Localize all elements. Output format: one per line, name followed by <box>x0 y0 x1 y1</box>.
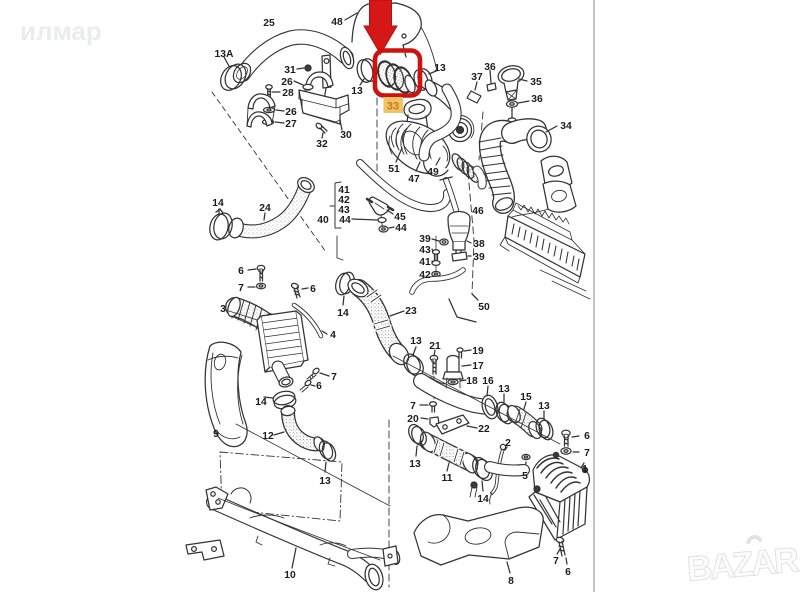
svg-text:13: 13 <box>538 401 550 412</box>
svg-text:47: 47 <box>408 174 420 185</box>
svg-text:13: 13 <box>410 336 422 347</box>
svg-text:4: 4 <box>330 330 336 341</box>
svg-text:27: 27 <box>285 119 297 130</box>
svg-text:44: 44 <box>395 223 407 234</box>
svg-text:26: 26 <box>285 107 297 118</box>
svg-text:37: 37 <box>471 72 483 83</box>
svg-text:7: 7 <box>331 372 337 383</box>
svg-text:50: 50 <box>478 302 490 313</box>
svg-text:18: 18 <box>466 376 478 387</box>
svg-text:13A: 13A <box>215 49 234 60</box>
svg-text:19: 19 <box>472 346 484 357</box>
svg-text:7: 7 <box>238 283 244 294</box>
svg-text:30: 30 <box>340 130 352 141</box>
svg-text:25: 25 <box>263 18 275 29</box>
svg-text:12: 12 <box>262 431 274 442</box>
svg-text:6: 6 <box>316 381 322 392</box>
svg-text:8: 8 <box>508 576 514 587</box>
svg-text:7: 7 <box>410 401 416 412</box>
svg-text:5: 5 <box>522 471 528 482</box>
svg-text:15: 15 <box>520 392 532 403</box>
svg-text:23: 23 <box>405 306 417 317</box>
svg-text:39: 39 <box>419 234 431 245</box>
svg-text:31: 31 <box>284 65 296 76</box>
svg-text:17: 17 <box>472 361 484 372</box>
svg-text:33: 33 <box>387 101 399 113</box>
svg-text:14: 14 <box>337 308 349 319</box>
svg-text:22: 22 <box>478 424 490 435</box>
svg-text:26: 26 <box>281 77 293 88</box>
svg-text:45: 45 <box>394 212 406 223</box>
svg-text:46: 46 <box>472 206 484 217</box>
svg-text:9: 9 <box>213 429 219 440</box>
svg-text:40: 40 <box>317 215 329 226</box>
svg-text:44: 44 <box>339 215 351 226</box>
svg-text:36: 36 <box>484 62 496 73</box>
svg-text:51: 51 <box>388 164 400 175</box>
svg-text:43: 43 <box>419 245 431 256</box>
svg-text:3: 3 <box>220 304 226 315</box>
svg-text:10: 10 <box>284 570 296 581</box>
svg-text:6: 6 <box>584 431 590 442</box>
svg-text:1: 1 <box>582 464 588 475</box>
svg-text:7: 7 <box>584 448 590 459</box>
svg-text:14: 14 <box>477 494 489 505</box>
svg-text:13: 13 <box>319 476 331 487</box>
svg-text:49: 49 <box>427 167 439 178</box>
svg-text:7: 7 <box>553 556 559 567</box>
svg-text:13: 13 <box>434 63 446 74</box>
svg-text:24: 24 <box>259 203 271 214</box>
svg-text:13: 13 <box>351 86 363 97</box>
svg-text:13: 13 <box>409 459 421 470</box>
svg-text:13: 13 <box>498 384 510 395</box>
svg-text:11: 11 <box>442 473 453 484</box>
svg-text:34: 34 <box>560 121 572 132</box>
svg-text:14: 14 <box>212 198 224 209</box>
svg-text:38: 38 <box>473 239 485 250</box>
svg-text:20: 20 <box>407 414 419 425</box>
svg-text:6: 6 <box>565 567 571 578</box>
svg-text:41: 41 <box>419 257 431 268</box>
svg-text:35: 35 <box>530 77 542 88</box>
svg-text:48: 48 <box>331 17 343 28</box>
svg-text:21: 21 <box>429 341 441 352</box>
svg-text:42: 42 <box>419 270 431 281</box>
svg-text:32: 32 <box>316 139 328 150</box>
svg-text:илмар: илмар <box>20 16 102 46</box>
svg-text:6: 6 <box>238 266 244 277</box>
svg-text:28: 28 <box>282 88 294 99</box>
svg-text:36: 36 <box>531 94 543 105</box>
svg-text:2: 2 <box>505 438 511 449</box>
svg-text:39: 39 <box>473 252 485 263</box>
svg-text:6: 6 <box>310 284 316 295</box>
svg-text:16: 16 <box>482 376 494 387</box>
svg-text:14: 14 <box>255 397 267 408</box>
